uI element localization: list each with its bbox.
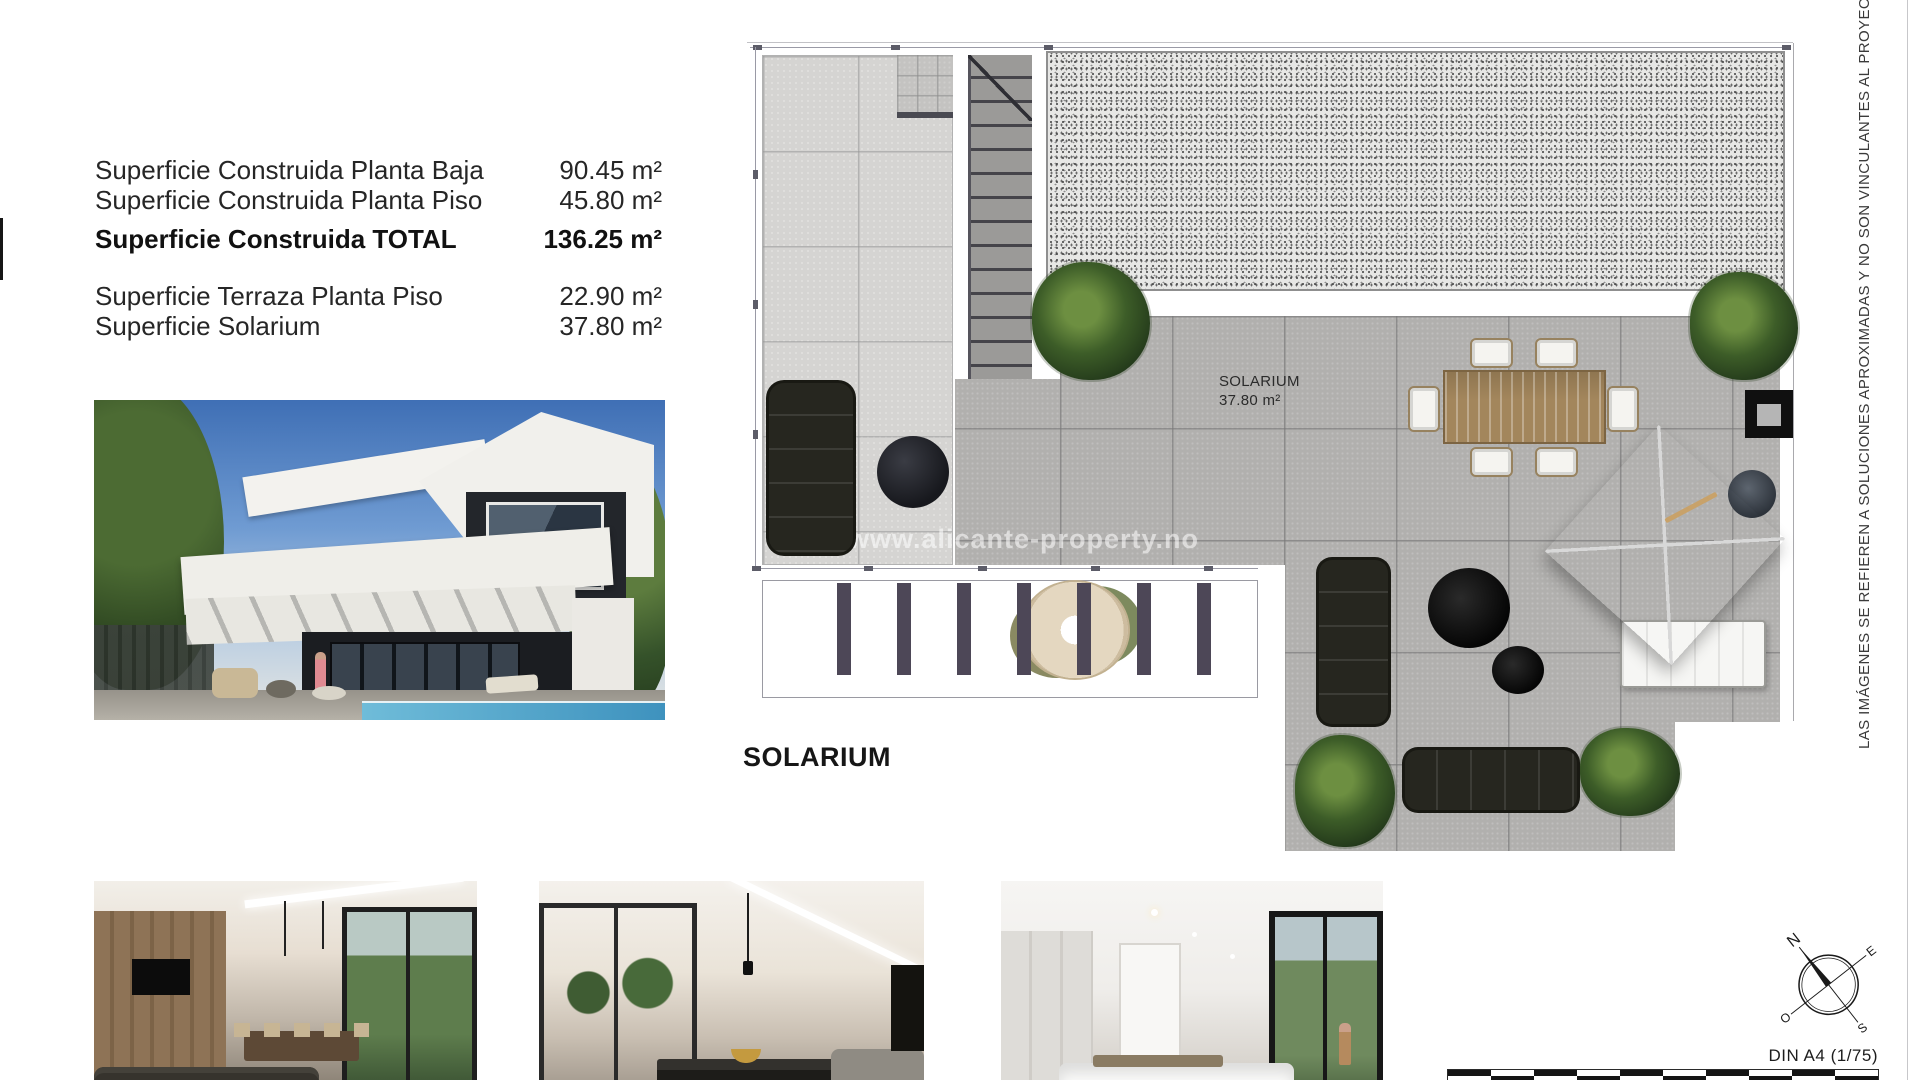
pendant-shade	[743, 961, 753, 975]
pendant-lamp	[747, 893, 749, 963]
pouf	[877, 436, 949, 508]
dim-tick	[864, 566, 873, 571]
room-name: SOLARIUM	[1219, 372, 1300, 391]
scale-label: DIN A4 (1/75)	[1678, 1046, 1878, 1066]
dining-chair	[1470, 447, 1513, 477]
sofa	[1316, 557, 1391, 727]
spec-label: Superficie Terraza Planta Piso	[95, 281, 443, 311]
gravel-roof	[1046, 51, 1785, 291]
spec-row: Superficie Solarium 37.80 m²	[95, 311, 662, 341]
coffee-table-outdoor	[312, 686, 346, 700]
dining-chairs-photo	[234, 1023, 369, 1037]
dim-tick	[891, 45, 900, 50]
spec-row: Superficie Construida Planta Baja 90.45 …	[95, 155, 662, 185]
person-outside	[1339, 1023, 1351, 1065]
outdoor-pouf	[266, 680, 296, 698]
interior-photo-kitchen	[539, 881, 924, 1080]
scale-bar-row	[1448, 1076, 1878, 1080]
dining-chair	[1470, 338, 1513, 368]
interior-photo-living	[94, 881, 477, 1080]
spec-row: Superficie Terraza Planta Piso 22.90 m²	[95, 281, 662, 311]
spec-label: Superficie Construida Planta Baja	[95, 155, 484, 185]
dim-tick	[1091, 566, 1100, 571]
compass-rose: N E O S	[1741, 897, 1915, 1071]
plan-title: SOLARIUM	[743, 742, 891, 773]
dining-table	[1443, 370, 1606, 444]
plan-right-border	[1793, 43, 1794, 721]
interior-photo-bedroom	[1001, 881, 1383, 1080]
pendant-lamp	[284, 901, 286, 956]
coffee-table-round	[1428, 568, 1510, 648]
dim-tick	[1044, 45, 1053, 50]
spec-row: Superficie Construida Planta Piso 45.80 …	[95, 185, 662, 215]
spec-label: Superficie Solarium	[95, 311, 320, 341]
outdoor-chair	[212, 668, 258, 698]
window-palms	[539, 903, 697, 1080]
plant	[1032, 262, 1150, 380]
dim-tick	[753, 300, 758, 309]
compass-o: O	[1778, 1009, 1794, 1026]
room-label: SOLARIUM 37.80 m²	[1219, 372, 1300, 410]
spec-value: 90.45 m²	[559, 155, 662, 185]
ceiling-spot	[1151, 909, 1158, 916]
compass-s: S	[1855, 1020, 1870, 1036]
pouf	[1492, 646, 1544, 694]
pergola-post	[1137, 583, 1151, 675]
spec-row-total: Superficie Construida TOTAL 136.25 m²	[95, 224, 662, 254]
tv-panel	[891, 965, 924, 1051]
slider-mullion	[1323, 911, 1327, 1080]
dim-tick	[978, 566, 987, 571]
spec-label: Superficie Construida TOTAL	[95, 224, 457, 254]
brochure-page: Superficie Construida Planta Baja 90.45 …	[0, 0, 1920, 1080]
stair-landing	[897, 55, 953, 113]
dim-tick	[752, 566, 761, 571]
plant	[1295, 735, 1395, 847]
dim-tick	[1782, 45, 1791, 50]
dimension-line-top	[750, 47, 1790, 48]
pergola-post	[1077, 583, 1091, 675]
pergola-post	[1197, 583, 1211, 675]
plan-top-border	[747, 42, 1793, 43]
pergola-post	[1017, 583, 1031, 675]
window-mullion	[406, 907, 410, 1080]
dimension-line-middle	[755, 568, 1258, 569]
dim-tick	[753, 430, 758, 439]
compass-n: N	[1784, 930, 1804, 951]
bed-bench	[1093, 1055, 1223, 1067]
wardrobe	[1001, 931, 1093, 1080]
sheet-right-border	[1907, 0, 1908, 1080]
window-mullion	[614, 903, 618, 1080]
pergola-post	[897, 583, 911, 675]
pool	[362, 701, 665, 720]
stair-winder-line	[968, 55, 1032, 121]
spec-label: Superficie Construida Planta Piso	[95, 185, 482, 215]
spec-value: 136.25 m²	[543, 224, 662, 254]
scan-artifact	[0, 218, 3, 280]
sofa	[1402, 747, 1580, 813]
room-area: 37.80 m²	[1219, 391, 1300, 410]
watermark: www.alicante-property.no	[848, 524, 1199, 555]
sofa	[766, 380, 856, 556]
wood-wall	[94, 911, 226, 1080]
sofa-gray	[831, 1049, 924, 1080]
pergola-post	[957, 583, 971, 675]
landing-edge	[897, 112, 953, 118]
dining-chair	[1408, 386, 1440, 432]
pendant-lamp	[322, 901, 324, 949]
house-exterior-photo	[94, 400, 665, 720]
dining-chair	[1607, 386, 1639, 432]
plant	[1580, 728, 1680, 816]
spec-value: 22.90 m²	[559, 281, 662, 311]
dim-tick	[1204, 566, 1213, 571]
skylight-inner	[1757, 404, 1781, 426]
disclaimer-vertical: LAS IMÁGENES SE REFIEREN A SOLUCIONES AP…	[1856, 37, 1873, 749]
tv-screen	[132, 959, 190, 995]
pergola-post	[837, 583, 851, 675]
plant	[1690, 272, 1798, 380]
spec-value: 37.80 m²	[559, 311, 662, 341]
compass-e: E	[1864, 943, 1879, 959]
compass-needle	[1797, 945, 1832, 987]
scale-bar	[1447, 1069, 1879, 1080]
dining-chair	[1535, 338, 1578, 368]
dim-tick	[753, 170, 758, 179]
dining-chair	[1535, 447, 1578, 477]
spec-value: 45.80 m²	[559, 185, 662, 215]
sofa-photo	[94, 1067, 319, 1080]
daybed-below	[1022, 582, 1128, 678]
